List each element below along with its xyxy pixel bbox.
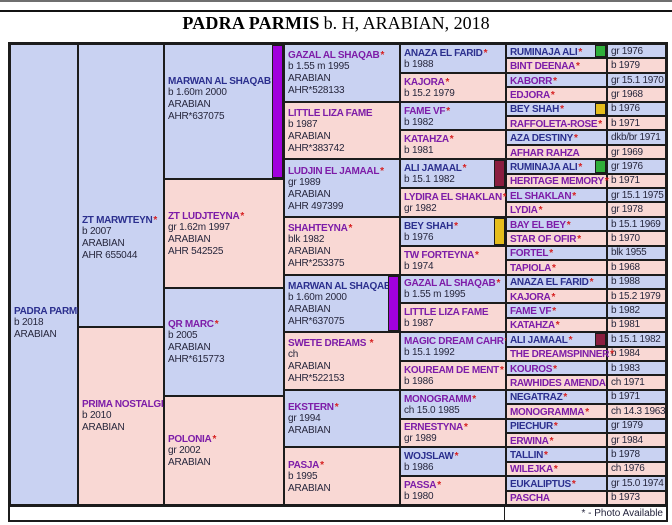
horse-detail-line: b 1981 [404, 145, 505, 157]
horse-name: KABORR* [510, 74, 557, 87]
horse-link-anaza-el-farid[interactable]: ANAZA EL FARID [404, 48, 483, 59]
pedigree-row-erwina: ERWINA*gr 1984 [506, 433, 666, 447]
horse-year: b 1983 [607, 361, 666, 375]
horse-link-tallin[interactable]: TALLIN [510, 450, 543, 461]
horse-link-bay-el-bey[interactable]: BAY EL BEY [510, 220, 566, 231]
horse-name: ANAZA EL FARID* [404, 46, 505, 59]
horse-name: LYDIA* [510, 203, 543, 216]
horse-detail-line: b 1980 [404, 491, 505, 503]
horse-name: GAZAL AL SHAQAB* [404, 276, 505, 289]
horse-year: dkb/br 1971 [607, 130, 666, 144]
horse-detail-line: gr 1.62m 1997 [168, 222, 283, 234]
horse-name: EDJORA* [510, 88, 555, 101]
header-divider-line [0, 10, 672, 12]
generation-column-4: GAZAL AL SHAQAB*b 1.55 m 1995ARABIANAHR*… [284, 44, 400, 505]
horse-link-ludjin-el-jamaal[interactable]: LUDJIN EL JAMAAL [288, 166, 379, 177]
horse-link-polonia[interactable]: POLONIA [168, 434, 211, 445]
pedigree-row-ruminaja-ali: RUMINAJA ALI*gr 1976 [506, 44, 666, 58]
horse-link-edjora[interactable]: EDJORA [510, 90, 550, 101]
photo-available-star: * [610, 349, 614, 360]
photo-available-star: * [569, 335, 573, 346]
horse-name: HERITAGE MEMORY* [510, 174, 609, 187]
horse-link-fame-vf[interactable]: FAME VF [404, 106, 445, 117]
horse-link-shahteyna[interactable]: SHAHTEYNA [288, 223, 348, 234]
horse-detail-line: AHR*253375 [288, 258, 399, 270]
photo-available-star: * [484, 48, 488, 59]
photo-available-star: * [240, 211, 244, 222]
horse-detail-line: b 1974 [404, 261, 505, 273]
pedigree-row-el-shaklan: EL SHAKLAN*gr 15.1 1975 [506, 188, 666, 202]
horse-link-raffoleta-rose[interactable]: RAFFOLETA-ROSE [510, 119, 597, 130]
horse-name: BINT DEENAA* [510, 59, 580, 72]
horse-link-katahza[interactable]: KATAHZA [404, 134, 449, 145]
pedigree-cell-ernestyna: ERNESTYNA*gr 1989 [400, 419, 506, 448]
pedigree-row-negatraz: NEGATRAZ*b 1971 [506, 390, 666, 404]
pedigree-cell-ruminaja-ali: RUMINAJA ALI* [506, 159, 607, 173]
horse-name: KOUROS* [510, 362, 557, 375]
horse-year: gr 15.1 1970 [607, 73, 666, 87]
horse-link-aza-destiny[interactable]: AZA DESTINY [510, 133, 573, 144]
photo-available-star: * [472, 394, 476, 405]
horse-link-wojslaw[interactable]: WOJSLAW [404, 451, 454, 462]
pedigree-cell-fame-vf: FAME VF*b 1982 [400, 102, 506, 131]
photo-available-star: * [380, 50, 384, 61]
horse-link-ali-jamaal[interactable]: ALI JAMAAL [404, 163, 462, 174]
photo-available-star: * [539, 205, 543, 216]
photo-available-star: * [585, 407, 589, 418]
photo-available-star: * [446, 106, 450, 117]
pedigree-row-anaza-el-farid: ANAZA EL FARID*b 1988 [506, 275, 666, 289]
horse-detail-line: b 1982 [404, 117, 505, 129]
horse-detail-line: AHR*522153 [288, 373, 399, 385]
pedigree-cell-little-liza-fame: LITTLE LIZA FAMEb 1987 [400, 303, 506, 332]
horse-detail-line: ARABIAN [288, 361, 399, 373]
horse-link-marwan-al-shaqab[interactable]: MARWAN AL SHAQAB [168, 76, 271, 87]
horse-detail-line: ARABIAN [168, 99, 283, 111]
pedigree-cell-zt-marwteyn: ZT MARWTEYN*b 2007ARABIANAHR 655044 [78, 44, 164, 327]
horse-year: b 1976 [607, 102, 666, 116]
horse-year: b 1970 [607, 231, 666, 245]
photo-available-star: * [153, 215, 157, 226]
pedigree-cell-marwan-al-shaqab: MARWAN AL SHAQAB*b 1.60m 2000ARABIANAHR*… [164, 44, 284, 179]
photo-available-star: * [576, 61, 580, 72]
horse-year: b 15.1 1969 [607, 217, 666, 231]
pedigree-row-piechur: PIECHUR*gr 1979 [506, 419, 666, 433]
photo-available-star: * [464, 422, 468, 433]
horse-detail-line: AHR*615773 [168, 354, 283, 366]
horse-name: TW FORTEYNA* [404, 248, 505, 261]
pedigree-cell-passa: PASSA*b 1980 [400, 476, 506, 505]
horse-link-ekstern[interactable]: EKSTERN [288, 402, 334, 413]
horse-detail-line: b 2018 [14, 317, 77, 329]
pedigree-cell-shahteyna: SHAHTEYNA*blk 1982ARABIANAHR*253375 [284, 217, 400, 275]
photo-available-star: * [475, 250, 479, 261]
horse-detail-line: ch [288, 349, 399, 361]
pedigree-cell-prima-nostalgia: PRIMA NOSTALGIAb 2010ARABIAN [78, 327, 164, 506]
yellow-ribbon [494, 218, 505, 245]
photo-available-star: * [554, 421, 558, 432]
horse-detail-line: b 1988 [404, 59, 505, 71]
horse-link-swete-dreams[interactable]: SWETE DREAMS [288, 338, 369, 349]
horse-link-marwan-al-shaqab[interactable]: MARWAN AL SHAQAB [288, 281, 391, 292]
horse-link-lydira-el-shaklan[interactable]: LYDIRA EL SHAKLAN [404, 192, 502, 203]
photo-available-star: * [598, 119, 602, 130]
top-border-line [0, 0, 672, 2]
pedigree-cell-bint-deenaa: BINT DEENAA* [506, 58, 607, 72]
horse-name: KOUREAM DE MENT* [404, 363, 505, 376]
pedigree-cell-gazal-al-shaqab: GAZAL AL SHAQAB*b 1.55 m 1995 [400, 275, 506, 304]
horse-detail-line: b 2005 [168, 330, 283, 342]
horse-name: ERNESTYNA* [404, 420, 505, 433]
pedigree-row-fame-vf: FAME VF*b 1982 [506, 303, 666, 317]
pedigree-cell-wilejka: WILEJKA* [506, 462, 607, 476]
horse-link-little-liza-fame[interactable]: LITTLE LIZA FAME [404, 307, 488, 318]
pedigree-cell-ali-jamaal: ALI JAMAAL*b 15.1 1982 [400, 159, 506, 188]
pedigree-row-lydia: LYDIA*gr 1978 [506, 202, 666, 216]
horse-detail-line: ARABIAN [288, 73, 399, 85]
green-swatch [595, 45, 606, 57]
horse-year: b 1971 [607, 174, 666, 188]
pedigree-row-tallin: TALLIN*b 1978 [506, 447, 666, 461]
pedigree-cell-heritage-memory: HERITAGE MEMORY* [506, 174, 607, 188]
horse-name: RAFFOLETA-ROSE* [510, 117, 602, 130]
pedigree-row-the-dreamspinner: THE DREAMSPINNER*b 1984 [506, 347, 666, 361]
horse-year: b 1988 [607, 275, 666, 289]
horse-link-gazal-al-shaqab[interactable]: GAZAL AL SHAQAB [288, 50, 379, 61]
pedigree-row-monogramma: MONOGRAMMA*ch 14.3 1963 [506, 404, 666, 418]
horse-detail-line: ARABIAN [168, 457, 283, 469]
photo-available-star: * [578, 162, 582, 173]
horse-link-fame-vf[interactable]: FAME VF [510, 306, 551, 317]
pedigree-row-tapiola: TAPIOLA*b 1968 [506, 260, 666, 274]
photo-available-star: * [349, 223, 353, 234]
horse-detail-line: b 1986 [404, 376, 505, 388]
horse-link-zt-ludjteyna[interactable]: ZT LUDJTEYNA [168, 211, 239, 222]
horse-detail-line: b 1976 [404, 232, 505, 244]
pedigree-cell-katahza: KATAHZA*b 1981 [400, 130, 506, 159]
pedigree-cell-el-shaklan: EL SHAKLAN* [506, 188, 607, 202]
pedigree-cell-bay-el-bey: BAY EL BEY* [506, 217, 607, 231]
horse-year: b 1982 [607, 303, 666, 317]
pedigree-cell-katahza: KATAHZA* [506, 318, 607, 332]
pedigree-cell-anaza-el-farid: ANAZA EL FARID* [506, 275, 607, 289]
horse-detail-line: AHR 655044 [82, 250, 163, 262]
pedigree-cell-kajora: KAJORA* [506, 289, 607, 303]
horse-link-anaza-el-farid[interactable]: ANAZA EL FARID [510, 277, 589, 288]
pedigree-cell-swete-dreams: SWETE DREAMS *chARABIANAHR*522153 [284, 332, 400, 390]
horse-detail-line: ARABIAN [288, 189, 399, 201]
horse-link-kajora[interactable]: KAJORA [510, 292, 550, 303]
horse-link-kouros[interactable]: KOUROS [510, 364, 552, 375]
horse-link-kouream-de-ment[interactable]: KOUREAM DE MENT [404, 365, 499, 376]
horse-link-bey-shah[interactable]: BEY SHAH [510, 104, 559, 115]
photo-available-note: * - Photo Available [505, 507, 666, 520]
horse-link-ernestyna[interactable]: ERNESTYNA [404, 422, 463, 433]
horse-link-afhar-rahza[interactable]: AFHAR RAHZA [510, 148, 579, 159]
pedigree-row-afhar-rahza: AFHAR RAHZAgr 1969 [506, 145, 666, 159]
pedigree-cell-negatraz: NEGATRAZ* [506, 390, 607, 404]
horse-name: LITTLE LIZA FAME [288, 106, 399, 119]
photo-available-star: * [551, 292, 555, 303]
horse-name: KATAHZA* [510, 318, 560, 331]
horse-name: KATAHZA* [404, 132, 505, 145]
pedigree-cell-lydia: LYDIA* [506, 202, 607, 216]
pedigree-cell-marwan-al-shaqab: MARWAN AL SHAQAB*b 1.60m 2000ARABIANAHR*… [284, 275, 400, 333]
horse-year: b 1979 [607, 58, 666, 72]
horse-link-wilejka[interactable]: WILEJKA [510, 464, 553, 475]
photo-available-star: * [544, 450, 548, 461]
horse-year: b 15.1 1982 [607, 332, 666, 346]
horse-year: b 1973 [607, 491, 666, 505]
horse-link-gazal-al-shaqab[interactable]: GAZAL AL SHAQAB [404, 278, 495, 289]
horse-name: STAR OF OFIR* [510, 232, 581, 245]
photo-available-star: * [445, 77, 449, 88]
photo-available-star: * [567, 220, 571, 231]
horse-link-kajora[interactable]: KAJORA [404, 77, 444, 88]
title-horse-name: PADRA PARMIS [182, 13, 319, 33]
photo-available-star: * [556, 320, 560, 331]
horse-link-kaborr[interactable]: KABORR [510, 76, 552, 87]
horse-name: PADRA PARMIS [14, 304, 77, 317]
horse-year: ch 1971 [607, 375, 666, 389]
horse-link-bey-shah[interactable]: BEY SHAH [404, 221, 453, 232]
horse-detail-line: b 1.60m 2000 [168, 87, 283, 99]
pedigree-cell-kouros: KOUROS* [506, 361, 607, 375]
pedigree-cell-zt-ludjteyna: ZT LUDJTEYNA*gr 1.62m 1997ARABIANAHR 542… [164, 179, 284, 288]
photo-available-star: * [463, 163, 467, 174]
horse-name: LYDIRA EL SHAKLAN* [404, 190, 505, 203]
horse-name: GAZAL AL SHAQAB* [288, 48, 399, 61]
pedigree-row-aza-destiny: AZA DESTINY*dkb/br 1971 [506, 130, 666, 144]
pedigree-cell-erwina: ERWINA* [506, 433, 607, 447]
horse-link-ali-jamaal[interactable]: ALI JAMAAL [510, 335, 568, 346]
horse-detail-line: AHR*637075 [168, 111, 283, 123]
pedigree-cell-kaborr: KABORR* [506, 73, 607, 87]
horse-name: BAY EL BEY* [510, 218, 571, 231]
horse-name: SWETE DREAMS * [288, 336, 399, 349]
photo-available-star: * [320, 460, 324, 471]
photo-available-star: * [554, 464, 558, 475]
photo-available-star: * [380, 166, 384, 177]
horse-link-erwina[interactable]: ERWINA [510, 436, 549, 447]
generation-column-5: ANAZA EL FARID*b 1988KAJORA*b 15.2 1979F… [400, 44, 506, 505]
photo-available-star: * [553, 76, 557, 87]
pedigree-cell-afhar-rahza: AFHAR RAHZA [506, 145, 607, 159]
maroon-swatch [595, 333, 606, 345]
pedigree-row-ali-jamaal: ALI JAMAAL*b 15.1 1982 [506, 332, 666, 346]
photo-available-star: * [212, 434, 216, 445]
horse-year: b 1971 [607, 116, 666, 130]
horse-link-ruminaja-ali[interactable]: RUMINAJA ALI [510, 162, 577, 173]
horse-link-eukaliptus[interactable]: EUKALIPTUS [510, 479, 571, 490]
photo-available-star: * [560, 104, 564, 115]
horse-link-fortel[interactable]: FORTEL [510, 248, 548, 259]
horse-year: gr 1969 [607, 145, 666, 159]
horse-link-magic-dream-cahr[interactable]: MAGIC DREAM CAHR [404, 336, 504, 347]
pedigree-row-bay-el-bey: BAY EL BEY*b 15.1 1969 [506, 217, 666, 231]
pedigree-row-fortel: FORTEL*blk 1955 [506, 246, 666, 260]
pedigree-cell-tallin: TALLIN* [506, 447, 607, 461]
horse-year: b 15.2 1979 [607, 289, 666, 303]
horse-name: RUMINAJA ALI* [510, 160, 582, 173]
horse-detail-line: ARABIAN [288, 304, 399, 316]
horse-link-piechur[interactable]: PIECHUR [510, 421, 553, 432]
horse-name: AZA DESTINY* [510, 131, 578, 144]
horse-link-el-shaklan[interactable]: EL SHAKLAN [510, 191, 571, 202]
horse-detail-line: ARABIAN [82, 238, 163, 250]
horse-name: TAPIOLA* [510, 261, 556, 274]
photo-available-star: * [215, 319, 219, 330]
horse-detail-line: b 15.1 1982 [404, 174, 505, 186]
pedigree-cell-raffoleta-rose: RAFFOLETA-ROSE* [506, 116, 607, 130]
horse-detail-line: blk 1982 [288, 234, 399, 246]
title-horse-details: b. H, ARABIAN, 2018 [324, 13, 490, 33]
horse-detail-line: b 1987 [404, 318, 505, 330]
photo-available-star: * [574, 133, 578, 144]
photo-available-star: * [370, 338, 374, 349]
pedigree-row-wilejka: WILEJKA*ch 1976 [506, 462, 666, 476]
horse-link-zt-marwteyn[interactable]: ZT MARWTEYN [82, 215, 152, 226]
photo-available-star: * [563, 392, 567, 403]
horse-name: ALI JAMAAL* [510, 333, 572, 346]
pedigree-cell-ruminaja-ali: RUMINAJA ALI* [506, 44, 607, 58]
horse-name: EKSTERN* [288, 400, 399, 413]
pedigree-row-bey-shah: BEY SHAH*b 1976 [506, 102, 666, 116]
horse-name: ANAZA EL FARID* [510, 275, 594, 288]
horse-detail-line: gr 1982 [404, 203, 505, 215]
horse-name: SHAHTEYNA* [288, 221, 399, 234]
horse-link-pascha[interactable]: PASCHA [510, 493, 550, 504]
horse-detail-line: ch 15.0 1985 [404, 405, 505, 417]
horse-detail-line: AHR*383742 [288, 143, 399, 155]
pedigree-cell-gazal-al-shaqab: GAZAL AL SHAQAB*b 1.55 m 1995ARABIANAHR*… [284, 44, 400, 102]
horse-link-tw-forteyna[interactable]: TW FORTEYNA [404, 250, 474, 261]
horse-name: PASSA* [404, 478, 505, 491]
horse-link-padra-parmis[interactable]: PADRA PARMIS [14, 306, 86, 317]
horse-year: gr 1976 [607, 44, 666, 58]
horse-year: gr 1976 [607, 159, 666, 173]
horse-link-pasja[interactable]: PASJA [288, 460, 319, 471]
horse-link-monogramma[interactable]: MONOGRAMMA [510, 407, 584, 418]
horse-name: MARWAN AL SHAQAB* [288, 279, 399, 292]
pedigree-cell-wojslaw: WOJSLAW*b 1986 [400, 447, 506, 476]
photo-available-star: * [500, 365, 504, 376]
horse-name: MARWAN AL SHAQAB* [168, 74, 283, 87]
horse-link-passa[interactable]: PASSA [404, 480, 436, 491]
horse-link-katahza[interactable]: KATAHZA [510, 320, 555, 331]
horse-name: LUDJIN EL JAMAAL* [288, 164, 399, 177]
horse-link-prima-nostalgia[interactable]: PRIMA NOSTALGIA [82, 399, 170, 410]
generation-column-2: ZT MARWTEYN*b 2007ARABIANAHR 655044PRIMA… [78, 44, 164, 505]
horse-link-tapiola[interactable]: TAPIOLA [510, 263, 551, 274]
horse-detail-line: b 15.2 1979 [404, 88, 505, 100]
horse-name: POLONIA* [168, 432, 283, 445]
horse-name: BEY SHAH* [510, 102, 564, 115]
pedigree-cell-ludjin-el-jamaal: LUDJIN EL JAMAAL*gr 1989ARABIANAHR 49739… [284, 159, 400, 217]
horse-link-monogramm[interactable]: MONOGRAMM [404, 394, 471, 405]
horse-year: b 1981 [607, 318, 666, 332]
horse-detail-line: ARABIAN [168, 342, 283, 354]
horse-link-negatraz[interactable]: NEGATRAZ [510, 392, 562, 403]
photo-available-star: * [450, 134, 454, 145]
photo-available-star: * [454, 221, 458, 232]
horse-detail-line: gr 1989 [404, 433, 505, 445]
generation-column-6: RUMINAJA ALI*gr 1976BINT DEENAA*b 1979KA… [506, 44, 666, 505]
horse-name: PIECHUR* [510, 419, 558, 432]
horse-name: WOJSLAW* [404, 449, 505, 462]
horse-detail-line: AHR 542525 [168, 246, 283, 258]
horse-link-rawhides-amenda[interactable]: RAWHIDES AMENDA [510, 378, 606, 389]
horse-link-the-dreamspinner[interactable]: THE DREAMSPINNER [510, 349, 609, 360]
purple-ribbon [272, 45, 283, 178]
horse-name: PASCHA [510, 491, 550, 504]
horse-detail-line: b 1.55 m 1995 [288, 61, 399, 73]
horse-detail-line: AHR 497399 [288, 201, 399, 213]
horse-detail-line: ARABIAN [14, 329, 77, 341]
photo-available-star: * [551, 90, 555, 101]
horse-link-lydia[interactable]: LYDIA [510, 205, 538, 216]
photo-available-star: * [496, 278, 500, 289]
horse-link-ruminaja-ali[interactable]: RUMINAJA ALI [510, 47, 577, 58]
horse-name: RUMINAJA ALI* [510, 45, 582, 58]
horse-year: b 1968 [607, 260, 666, 274]
horse-link-bint-deenaa[interactable]: BINT DEENAA [510, 61, 575, 72]
horse-year: gr 1984 [607, 433, 666, 447]
horse-name: BEY SHAH* [404, 219, 505, 232]
pedigree-cell-aza-destiny: AZA DESTINY* [506, 130, 607, 144]
pedigree-cell-monogramm: MONOGRAMM*ch 15.0 1985 [400, 390, 506, 419]
horse-year: blk 1955 [607, 246, 666, 260]
horse-detail-line: AHR*637075 [288, 316, 399, 328]
photo-available-star: * [455, 451, 459, 462]
pedigree-cell-rawhides-amenda: RAWHIDES AMENDA [506, 375, 607, 389]
horse-detail-line: b 1986 [404, 462, 505, 474]
pedigree-cell-fortel: FORTEL* [506, 246, 607, 260]
horse-name: MONOGRAMM* [404, 392, 505, 405]
horse-name: MONOGRAMMA* [510, 405, 589, 418]
horse-link-qr-marc[interactable]: QR MARC [168, 319, 214, 330]
horse-link-heritage-memory[interactable]: HERITAGE MEMORY [510, 176, 604, 187]
horse-detail-line: b 2007 [82, 226, 163, 238]
horse-name: NEGATRAZ* [510, 390, 567, 403]
horse-name: KAJORA* [510, 290, 555, 303]
horse-name: TALLIN* [510, 448, 548, 461]
pedigree-row-kajora: KAJORA*b 15.2 1979 [506, 289, 666, 303]
horse-year: ch 1976 [607, 462, 666, 476]
horse-year: gr 1968 [607, 87, 666, 101]
pedigree-table: PADRA PARMISb 2018ARABIANZT MARWTEYN*b 2… [8, 42, 668, 507]
horse-detail-line: b 1.55 m 1995 [404, 289, 505, 301]
horse-link-star-of-ofir[interactable]: STAR OF OFIR [510, 234, 576, 245]
photo-available-star: * [549, 248, 553, 259]
pedigree-cell-magic-dream-cahr: MAGIC DREAM CAHR*b 15.1 1992 [400, 332, 506, 361]
pedigree-row-eukaliptus: EUKALIPTUS*gr 15.0 1974 [506, 476, 666, 490]
horse-detail-line: gr 2002 [168, 445, 283, 457]
pedigree-row-raffoleta-rose: RAFFOLETA-ROSE*b 1971 [506, 116, 666, 130]
pedigree-cell-piechur: PIECHUR* [506, 419, 607, 433]
horse-detail-line: ARABIAN [168, 234, 283, 246]
horse-detail-line: gr 1989 [288, 177, 399, 189]
pedigree-cell-edjora: EDJORA* [506, 87, 607, 101]
horse-name: ERWINA* [510, 434, 553, 447]
horse-year: gr 1979 [607, 419, 666, 433]
pedigree-row-bint-deenaa: BINT DEENAA*b 1979 [506, 58, 666, 72]
horse-detail-line: ARABIAN [288, 425, 399, 437]
horse-detail-line: b 2010 [82, 410, 163, 422]
horse-link-little-liza-fame[interactable]: LITTLE LIZA FAME [288, 108, 372, 119]
pedigree-page: PADRA PARMISb. H, ARABIAN, 2018 PADRA PA… [0, 0, 672, 525]
pedigree-cell-qr-marc: QR MARC*b 2005ARABIANAHR*615773 [164, 288, 284, 397]
